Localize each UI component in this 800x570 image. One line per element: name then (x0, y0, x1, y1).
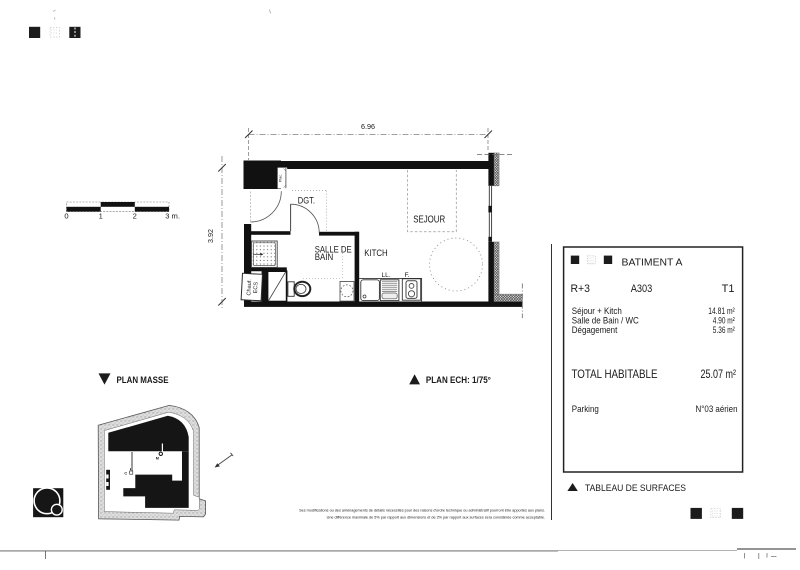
svg-text:ECS: ECS (253, 282, 260, 294)
svg-text:T1: T1 (722, 283, 735, 295)
svg-text:3.92: 3.92 (206, 229, 215, 243)
svg-text:Parking: Parking (572, 404, 599, 414)
svg-text:0: 0 (64, 212, 68, 221)
svg-text:PLAN MASSE: PLAN MASSE (117, 375, 169, 386)
svg-text:2: 2 (133, 212, 137, 221)
svg-text:3 m.: 3 m. (165, 212, 180, 221)
svg-text:5.36 m²: 5.36 m² (713, 325, 735, 335)
svg-text:R+3: R+3 (571, 283, 591, 295)
svg-text:14.81 m²: 14.81 m² (708, 306, 735, 316)
svg-text:N°03 aérien: N°03 aérien (696, 404, 738, 414)
svg-text:LL.: LL. (382, 272, 391, 279)
svg-text:BAIN: BAIN (315, 252, 334, 262)
svg-text:KITCH: KITCH (364, 248, 388, 258)
svg-text:Dégagement: Dégagement (572, 325, 618, 335)
svg-text:M: M (156, 457, 159, 461)
svg-text:A303: A303 (631, 283, 653, 295)
svg-text:25.07 m²: 25.07 m² (701, 367, 737, 381)
svg-text:DGT.: DGT. (298, 194, 315, 205)
svg-text:G: G (54, 507, 60, 514)
svg-text:Une différence maximale de 5%: Une différence maximale de 5% par rappor… (327, 515, 545, 519)
svg-text:Séjour + Kitch: Séjour + Kitch (572, 306, 622, 316)
svg-text:C: C (124, 471, 127, 475)
svg-text:SEJOUR: SEJOUR (413, 214, 445, 225)
svg-text:Ses modifications ou des aména: Ses modifications ou des aménagements de… (299, 509, 545, 513)
svg-text:1: 1 (99, 212, 103, 221)
svg-text:TOTAL HABITABLE: TOTAL HABITABLE (572, 367, 658, 381)
svg-text:BATIMENT A: BATIMENT A (622, 258, 683, 269)
svg-text:TABLEAU DE SURFACES: TABLEAU DE SURFACES (585, 482, 686, 493)
svg-text:PLAN ECH: 1/75°: PLAN ECH: 1/75° (426, 375, 491, 386)
svg-text:6.96: 6.96 (361, 122, 375, 131)
svg-text:F.: F. (405, 272, 410, 279)
svg-text:Plac.: Plac. (278, 174, 282, 182)
